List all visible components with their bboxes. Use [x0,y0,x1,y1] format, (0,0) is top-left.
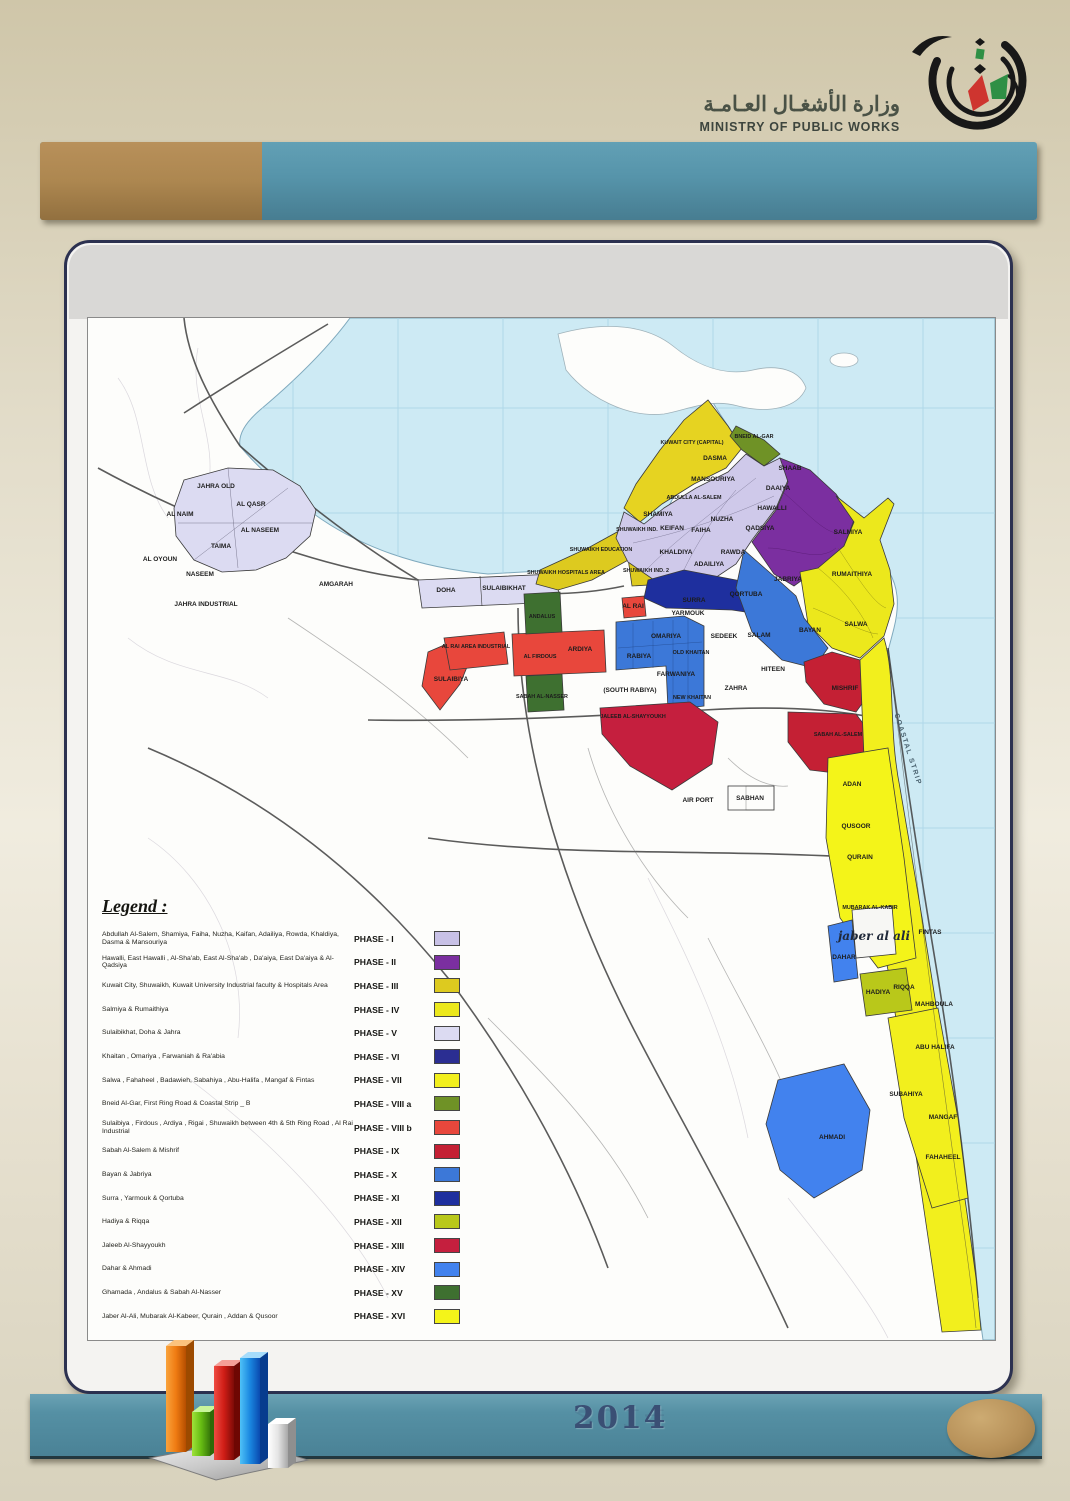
map-label: HADIYA [866,989,891,996]
map-label: ADAN [843,781,862,788]
map-label: QADSIYA [745,525,774,532]
legend-color-swatch [434,1262,460,1277]
legend-phase-label: PHASE - III [354,981,434,991]
footer-oval-badge [947,1399,1035,1458]
map-label: SABAH AL-NASSER [516,694,568,700]
map-label: SEDEEK [711,633,738,640]
map-label: AL NASEEM [241,527,279,534]
map-label: AL RAI AREA INDUSTRIAL [442,644,511,650]
map-label: AIR PORT [682,797,713,804]
map-label: MANGAF [929,1114,958,1121]
map-label: SALWA [844,621,867,628]
legend-row: Khaitan , Omariya , Farwaniah & Ra'abiaP… [102,1045,480,1069]
map-label: ADAILIYA [694,561,724,568]
map-label: SHUWAIKH IND. 2 [623,568,669,574]
legend-color-swatch [434,1073,460,1088]
map-label: DAAIYA [766,485,791,492]
legend-areas-text: Salwa , Fahaheel , Badawieh, Sabahiya , … [102,1077,354,1084]
legend-phase-label: PHASE - II [354,957,434,967]
legend-color-swatch [434,1049,460,1064]
legend-areas-text: Jaber Al-Ali, Mubarak Al-Kabeer, Qurain … [102,1313,354,1320]
map-label: OMARIYA [651,633,681,640]
map-label: RABIYA [627,653,652,660]
legend-areas-text: Khaitan , Omariya , Farwaniah & Ra'abia [102,1053,354,1060]
legend-color-swatch [434,1002,460,1017]
map-label: SULAIBIYA [434,676,469,683]
legend-entries: Abdullah Al-Salem, Shamiya, Faiha, Nuzha… [102,927,480,1328]
legend-areas-text: Hawalli, East Hawalli , Al-Sha'ab, East … [102,955,354,970]
map-label: ARDIYA [568,646,593,653]
legend-phase-label: PHASE - VI [354,1052,434,1062]
legend-row: Jaber Al-Ali, Mubarak Al-Kabeer, Qurain … [102,1305,480,1329]
map-label: SUBAHIYA [889,1091,923,1098]
map-label: BAYAN [799,627,821,634]
region-al-rai-area [444,632,508,670]
legend-areas-text: Jaleeb Al-Shayyoukh [102,1242,354,1249]
legend-areas-text: Ghamada , Andalus & Sabah Al-Nasser [102,1289,354,1296]
map-label: AL OYOUN [143,556,177,563]
map-label: SULAIBIKHAT [482,585,526,592]
map-label: ZAHRA [725,685,748,692]
map-label: KUWAIT CITY (CAPITAL) [661,440,724,446]
map-label: SHUWAIKH HOSPITALS AREA [527,570,605,576]
header-bar [40,142,1037,220]
map-label: (SOUTH RABIYA) [603,687,656,694]
map-legend: Legend : Abdullah Al-Salem, Shamiya, Fai… [102,896,480,1328]
legend-phase-label: PHASE - XV [354,1288,434,1298]
legend-title: Legend : [102,896,480,917]
legend-areas-text: Surra , Yarmouk & Qortuba [102,1195,354,1202]
legend-row: Dahar & AhmadiPHASE - XIV [102,1257,480,1281]
map-label: BNEID AL-GAR [734,434,773,440]
legend-row: Jaleeb Al-ShayyoukhPHASE - XIII [102,1234,480,1258]
ministry-title: وزارة الأشغـال العـامـة MINISTRY OF PUBL… [700,92,900,140]
map-label: QURAIN [847,854,873,861]
map-label: SABHAN [736,795,764,802]
map-label: AL FIRDOUS [524,654,557,660]
map-label: JALEEB AL-SHAYYOUKH [600,714,666,720]
map-label: ANDALUS [529,614,556,620]
header-tab [40,142,262,220]
legend-color-swatch [434,1120,460,1135]
legend-phase-label: PHASE - IX [354,1146,434,1156]
region-firdous-ardiya [512,630,606,676]
legend-row: Sulaibiya , Firdous , Ardiya , Rigai , S… [102,1116,480,1140]
legend-color-swatch [434,1285,460,1300]
legend-areas-text: Kuwait City, Shuwaikh, Kuwait University… [102,982,354,989]
map-label: HITEEN [761,666,785,673]
map-label: AL NAIM [167,511,194,518]
bay-island [830,353,858,367]
map-label: SALAM [747,632,770,639]
map-label: FAHAHEEL [925,1154,960,1161]
legend-phase-label: PHASE - XI [354,1193,434,1203]
legend-row: Hadiya & RiqqaPHASE - XII [102,1210,480,1234]
map-label: AHMADI [819,1134,845,1141]
legend-color-swatch [434,978,460,993]
map-label: DOHA [436,587,455,594]
legend-row: Bneid Al-Gar, First Ring Road & Coastal … [102,1092,480,1116]
legend-phase-label: PHASE - XII [354,1217,434,1227]
map-label: MANSOURIYA [691,476,735,483]
legend-phase-label: PHASE - V [354,1028,434,1038]
map-label: MAHBOULA [915,1001,953,1008]
legend-row: Sulaibikhat, Doha & JahraPHASE - V [102,1021,480,1045]
map-label: SURRA [682,597,705,604]
map-label: DAHAR [832,954,856,961]
legend-phase-label: PHASE - XIV [354,1264,434,1274]
map-label: JAHRA INDUSTRIAL [174,601,237,608]
map-label: FAIHA [691,527,711,534]
map-label: MISHRIF [832,685,859,692]
legend-areas-text: Salmiya & Rumaithiya [102,1006,354,1013]
map-label: JABRIYA [774,576,802,583]
legend-color-swatch [434,1214,460,1229]
map-label: TAIMA [211,543,231,550]
legend-areas-text: Sulaibiya , Firdous , Ardiya , Rigai , S… [102,1120,354,1135]
ministry-name-english: MINISTRY OF PUBLIC WORKS [700,120,900,134]
map-label: RUMAITHIYA [832,571,873,578]
map-label: QUSOOR [842,823,871,830]
map-label: FARWANIYA [657,671,696,678]
bar-chart-icon [146,1330,314,1486]
map-label: NEW KHAITAN [673,695,711,701]
map-label: SALMIYA [834,529,863,536]
map-label: ABDULLA AL-SALEM [667,495,723,501]
map-label: AL QASR [236,501,265,508]
map-label: FINTAS [919,929,943,936]
legend-color-swatch [434,955,460,970]
legend-color-swatch [434,1167,460,1182]
region-sabah-al-nasser [526,674,564,712]
legend-phase-label: PHASE - X [354,1170,434,1180]
map-label: MUBARAK AL-KABIR [842,905,897,911]
map-label: OLD KHAITAN [673,650,710,656]
legend-color-swatch [434,1144,460,1159]
legend-row: Salwa , Fahaheel , Badawieh, Sabahiya , … [102,1069,480,1093]
map-label: SHAMIYA [643,511,673,518]
legend-color-swatch [434,1238,460,1253]
legend-areas-text: Abdullah Al-Salem, Shamiya, Faiha, Nuzha… [102,931,354,946]
map-label: SHUWAIKH IND. [616,527,658,533]
map-label: SHAAB [778,465,801,472]
page: وزارة الأشغـال العـامـة MINISTRY OF PUBL… [0,0,1070,1501]
legend-phase-label: PHASE - VII [354,1075,434,1085]
legend-phase-label: PHASE - VIII a [354,1099,434,1109]
map-label: ABU HALIFA [915,1044,955,1051]
legend-color-swatch [434,1026,460,1041]
map-label: KEIFAN [660,525,684,532]
map-label: NUZHA [711,516,734,523]
legend-areas-text: Bneid Al-Gar, First Ring Road & Coastal … [102,1100,354,1107]
map-label: AL RAI [622,603,644,610]
legend-row: Surra , Yarmouk & QortubaPHASE - XI [102,1187,480,1211]
legend-row: Hawalli, East Hawalli , Al-Sha'ab, East … [102,951,480,975]
map-label: KHALDIYA [660,549,693,556]
map-label: DASMA [703,455,727,462]
legend-areas-text: Sulaibikhat, Doha & Jahra [102,1029,354,1036]
legend-color-swatch [434,931,460,946]
ministry-name-arabic: وزارة الأشغـال العـامـة [700,92,900,117]
legend-row: Ghamada , Andalus & Sabah Al-NasserPHASE… [102,1281,480,1305]
legend-row: Kuwait City, Shuwaikh, Kuwait University… [102,974,480,998]
map-label: NASEEM [186,571,214,578]
map-label: SHUWAIKH EDUCATION [570,547,633,553]
ministry-logo: وزارة الأشغـال العـامـة MINISTRY OF PUBL… [662,28,1042,140]
region-andalus [524,592,562,634]
legend-phase-label: PHASE - IV [354,1005,434,1015]
map-label: jaber al ali [836,929,910,943]
legend-row: Bayan & JabriyaPHASE - X [102,1163,480,1187]
legend-phase-label: PHASE - I [354,934,434,944]
legend-row: Sabah Al-Salem & MishrifPHASE - IX [102,1139,480,1163]
legend-color-swatch [434,1309,460,1324]
legend-phase-label: PHASE - XIII [354,1241,434,1251]
legend-color-swatch [434,1191,460,1206]
legend-areas-text: Hadiya & Riqqa [102,1218,354,1225]
legend-areas-text: Bayan & Jabriya [102,1171,354,1178]
legend-areas-text: Dahar & Ahmadi [102,1265,354,1272]
map-label: YARMOUK [672,610,705,617]
map-label: SABAH AL-SALEM [814,732,863,738]
map-label: JAHRA OLD [197,483,235,490]
legend-phase-label: PHASE - VIII b [354,1123,434,1133]
ministry-swirl-icon [910,28,1042,140]
year-reflection: 2014 [573,1403,667,1432]
legend-areas-text: Sabah Al-Salem & Mishrif [102,1147,354,1154]
map-label: AMGARAH [319,581,353,588]
map-label: QORTUBA [730,591,763,598]
map-label: RAWDA [721,549,746,556]
legend-phase-label: PHASE - XVI [354,1311,434,1321]
map-label: RIQQA [893,984,915,991]
legend-row: Salmiya & RumaithiyaPHASE - IV [102,998,480,1022]
legend-color-swatch [434,1096,460,1111]
legend-row: Abdullah Al-Salem, Shamiya, Faiha, Nuzha… [102,927,480,951]
map-label: HAWALLI [757,505,786,512]
card-top-band [69,245,1008,319]
